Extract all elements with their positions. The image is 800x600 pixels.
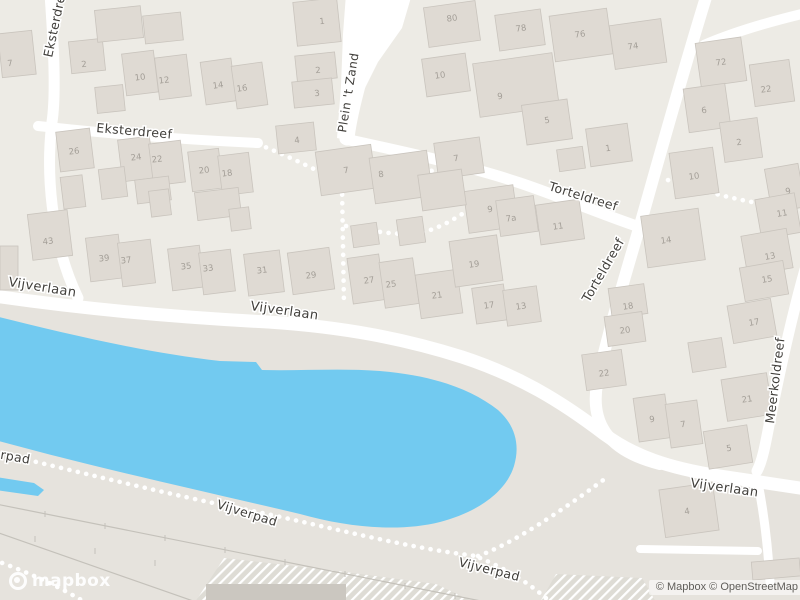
house-number: 19 xyxy=(468,259,480,270)
house-number: 7a xyxy=(505,213,517,224)
house-number: 17 xyxy=(483,300,495,311)
house-number: 80 xyxy=(446,13,458,24)
house-number: 20 xyxy=(198,165,210,176)
building xyxy=(418,169,467,211)
house-number: 17 xyxy=(748,317,760,329)
building xyxy=(396,216,425,245)
house-number: 22 xyxy=(760,84,772,95)
building-footprint xyxy=(143,12,184,44)
building-footprint xyxy=(751,558,800,580)
house-number: 14 xyxy=(212,80,224,91)
hatch-area-lines xyxy=(540,574,656,600)
house-number: 20 xyxy=(619,325,631,336)
house-number: 18 xyxy=(221,168,233,179)
attribution-text: © Mapbox © OpenStreetMap xyxy=(656,581,798,593)
house-number: 25 xyxy=(385,279,397,290)
building-footprint xyxy=(496,196,539,237)
house-number: 4 xyxy=(294,136,300,147)
map-viewport: 7210121416123480781095177674722262911131… xyxy=(0,0,800,600)
building xyxy=(557,146,586,171)
house-number: 13 xyxy=(764,251,776,263)
building-footprint xyxy=(749,59,794,106)
building-footprint xyxy=(94,6,143,43)
mapbox-logo[interactable]: mapbox xyxy=(9,571,111,591)
building-footprint xyxy=(688,338,726,373)
building-footprint xyxy=(0,30,36,77)
building xyxy=(351,222,380,247)
house-number: 15 xyxy=(761,274,773,286)
building-footprint xyxy=(98,167,127,200)
house-number: 39 xyxy=(98,253,110,264)
building xyxy=(98,167,127,200)
building xyxy=(229,207,252,231)
house-number: 21 xyxy=(741,394,753,406)
house-number: 72 xyxy=(715,57,727,68)
building-footprint xyxy=(95,85,126,114)
building xyxy=(0,30,36,77)
house-number: 12 xyxy=(158,75,170,86)
house-number: 10 xyxy=(434,70,446,81)
building-dark xyxy=(206,584,346,600)
building xyxy=(641,208,706,268)
house-number: 21 xyxy=(431,290,443,301)
house-number: 1 xyxy=(319,17,325,28)
building xyxy=(293,0,341,46)
mapbox-logo-word: mapbox xyxy=(32,571,111,591)
house-number: 33 xyxy=(202,263,214,274)
house-number: 11 xyxy=(552,221,564,232)
house-number: 78 xyxy=(515,23,527,34)
building-footprint xyxy=(641,208,706,268)
attribution[interactable]: © Mapbox © OpenStreetMap xyxy=(649,580,800,595)
house-number: 35 xyxy=(180,261,192,272)
building xyxy=(751,558,800,580)
building xyxy=(143,12,184,44)
map-canvas[interactable]: 7210121416123480781095177674722262911131… xyxy=(0,0,800,600)
building-footprint xyxy=(422,53,471,97)
building xyxy=(95,85,126,114)
house-number: 43 xyxy=(42,236,54,247)
house-number: 14 xyxy=(660,235,672,246)
building xyxy=(148,189,171,217)
mapbox-logo-icon xyxy=(9,572,27,590)
house-number: 10 xyxy=(688,171,700,182)
building-footprint xyxy=(557,146,586,171)
house-number: 11 xyxy=(776,208,788,220)
house-number: 74 xyxy=(627,41,639,52)
house-number: 2 xyxy=(81,60,87,71)
building xyxy=(422,53,471,97)
road xyxy=(640,549,758,551)
building-footprint xyxy=(396,216,425,245)
house-number: 29 xyxy=(305,270,317,281)
house-number: 27 xyxy=(363,275,375,286)
building xyxy=(94,6,143,43)
house-number: 22 xyxy=(151,154,163,165)
footpath-dotted xyxy=(342,186,344,306)
building xyxy=(27,210,72,261)
building-footprint xyxy=(27,210,72,261)
house-number: 22 xyxy=(598,368,610,379)
house-number: 13 xyxy=(515,301,527,312)
building xyxy=(496,196,539,237)
house-number: 76 xyxy=(574,29,586,40)
house-number: 26 xyxy=(68,146,80,157)
building xyxy=(749,59,794,106)
building-footprint xyxy=(60,175,86,209)
building-footprint xyxy=(293,0,341,46)
house-number: 24 xyxy=(130,152,142,163)
building-footprint xyxy=(148,189,171,217)
house-number: 2 xyxy=(315,66,321,77)
building-footprint xyxy=(418,169,467,211)
house-number: 7 xyxy=(7,59,13,70)
building xyxy=(292,78,334,108)
house-number: 10 xyxy=(134,72,146,83)
house-number: 16 xyxy=(236,83,248,94)
house-number: 37 xyxy=(120,255,132,266)
building xyxy=(60,175,86,209)
house-number: 31 xyxy=(256,265,268,276)
building-footprint xyxy=(351,222,380,247)
house-number: 18 xyxy=(622,301,634,312)
building-footprint xyxy=(292,78,334,108)
building-footprint xyxy=(229,207,252,231)
building xyxy=(688,338,726,373)
house-number: 3 xyxy=(314,89,320,100)
